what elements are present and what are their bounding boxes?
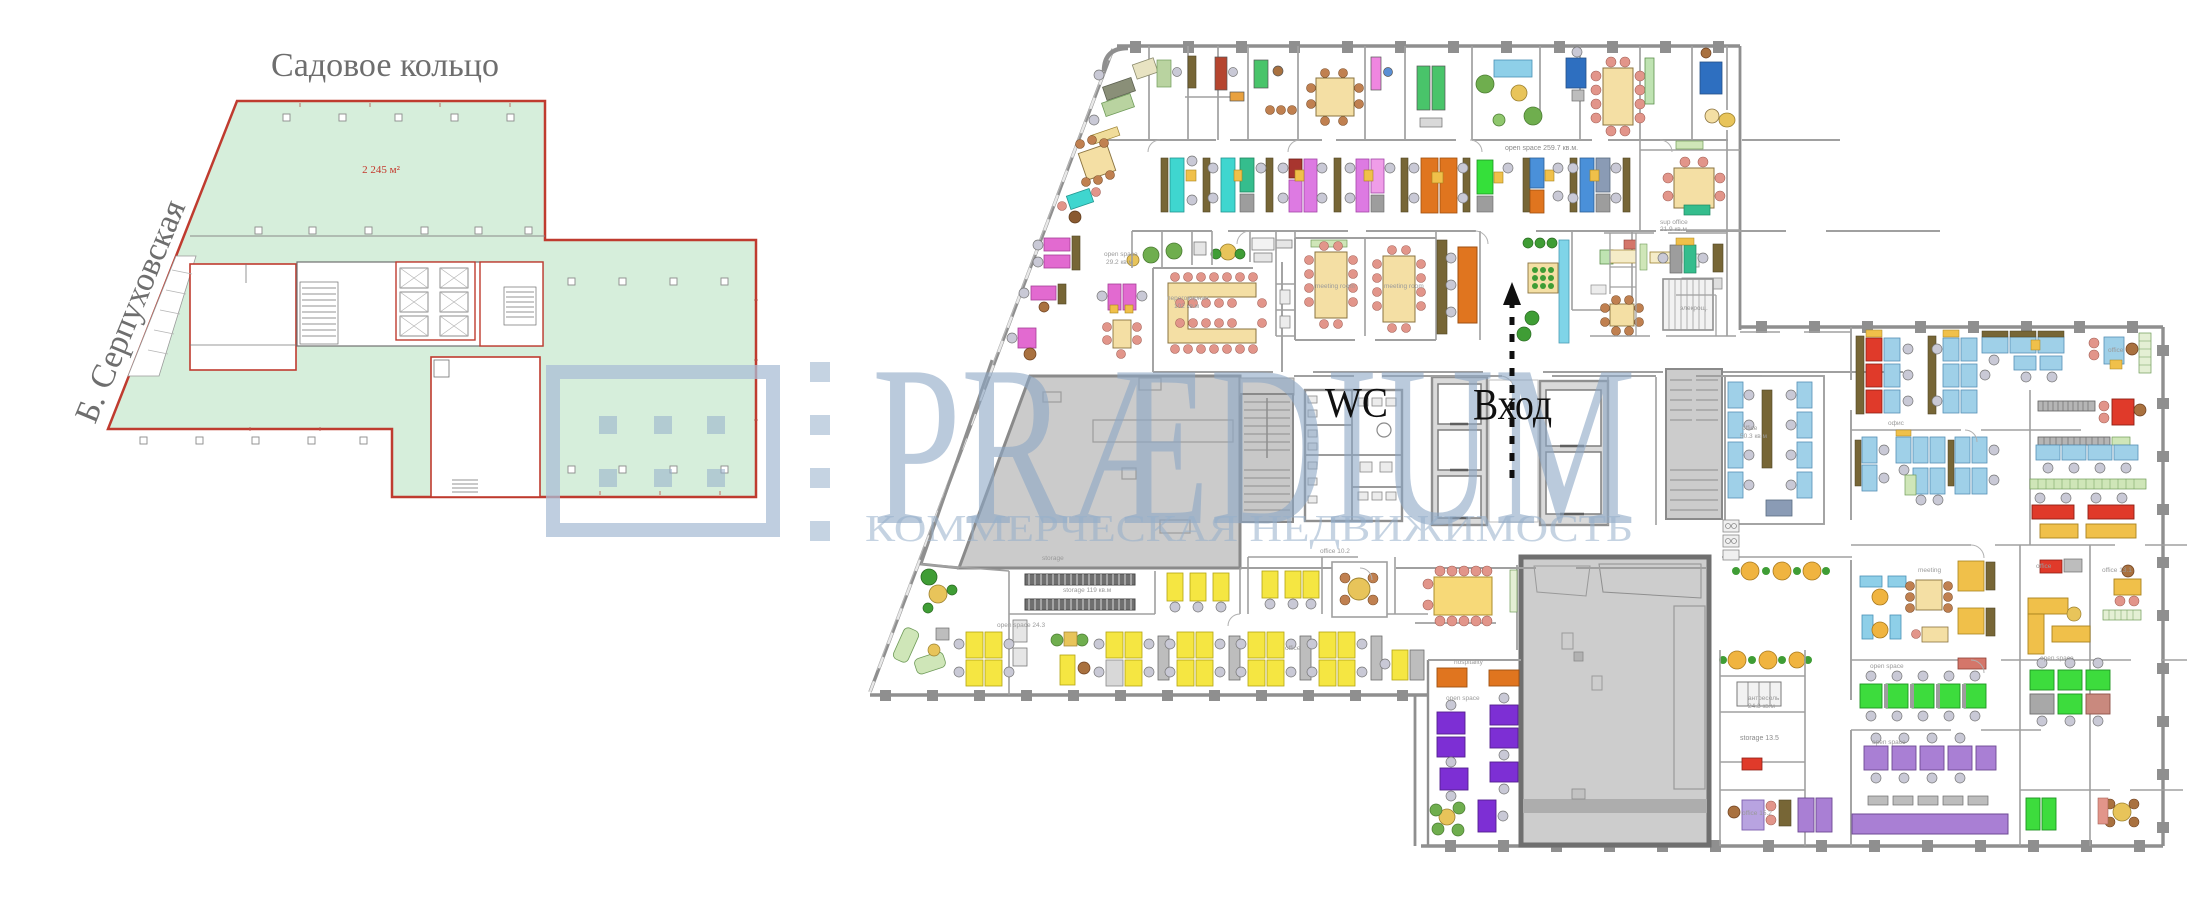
- svg-text:open space: open space: [1870, 663, 1904, 670]
- svg-text:office 15.2: office 15.2: [1742, 810, 1772, 817]
- svg-text:hospitality: hospitality: [1454, 659, 1484, 666]
- svg-text:office: office: [1285, 645, 1301, 652]
- svg-text:21.9 кв.м: 21.9 кв.м: [1660, 226, 1688, 233]
- svg-text:open space 259.7 кв.м.: open space 259.7 кв.м.: [1505, 145, 1578, 152]
- svg-text:Садовое кольцо: Садовое кольцо: [271, 47, 499, 84]
- svg-text:24.3 кв.м: 24.3 кв.м: [1748, 703, 1776, 710]
- svg-text:meeting room: meeting room: [1384, 283, 1424, 290]
- svg-text:антресоль: антресоль: [1748, 695, 1780, 702]
- svg-text:storage 119 кв.м: storage 119 кв.м: [1063, 587, 1112, 594]
- svg-text:КОММЕРЧЕСКАЯ НЕДВИЖИМОСТЬ: КОММЕРЧЕСКАЯ НЕДВИЖИМОСТЬ: [865, 508, 1632, 550]
- svg-text:open space: open space: [1104, 251, 1138, 258]
- svg-text:open space: open space: [1446, 695, 1480, 702]
- svg-text:офис: офис: [1888, 420, 1905, 427]
- svg-text:office: office: [1742, 425, 1758, 432]
- svg-text:29.2 кв.м: 29.2 кв.м: [1106, 259, 1134, 266]
- svg-text:open space: open space: [2040, 655, 2074, 662]
- svg-text:office: office: [2036, 563, 2052, 570]
- svg-text:storage 13.5: storage 13.5: [1740, 735, 1779, 742]
- svg-text:office 13.1: office 13.1: [2102, 567, 2132, 574]
- svg-text:open space 24.3: open space 24.3: [997, 622, 1045, 629]
- svg-text:50.3 кв.м: 50.3 кв.м: [1740, 433, 1768, 440]
- svg-text:open space: open space: [1872, 739, 1906, 746]
- svg-text:2 245 м²: 2 245 м²: [362, 164, 400, 176]
- svg-text:102 кв.м: 102 кв.м: [1174, 303, 1200, 310]
- svg-text:meeting: meeting: [1918, 567, 1942, 574]
- svg-text:переговорная: переговорная: [1167, 295, 1209, 302]
- svg-text:meeting room: meeting room: [1315, 283, 1355, 290]
- svg-text:sup office: sup office: [1660, 219, 1688, 226]
- svg-text:элекрощ.: элекрощ.: [1680, 305, 1708, 312]
- svg-text:WC: WC: [1325, 381, 1388, 427]
- svg-text:office: office: [2108, 347, 2124, 354]
